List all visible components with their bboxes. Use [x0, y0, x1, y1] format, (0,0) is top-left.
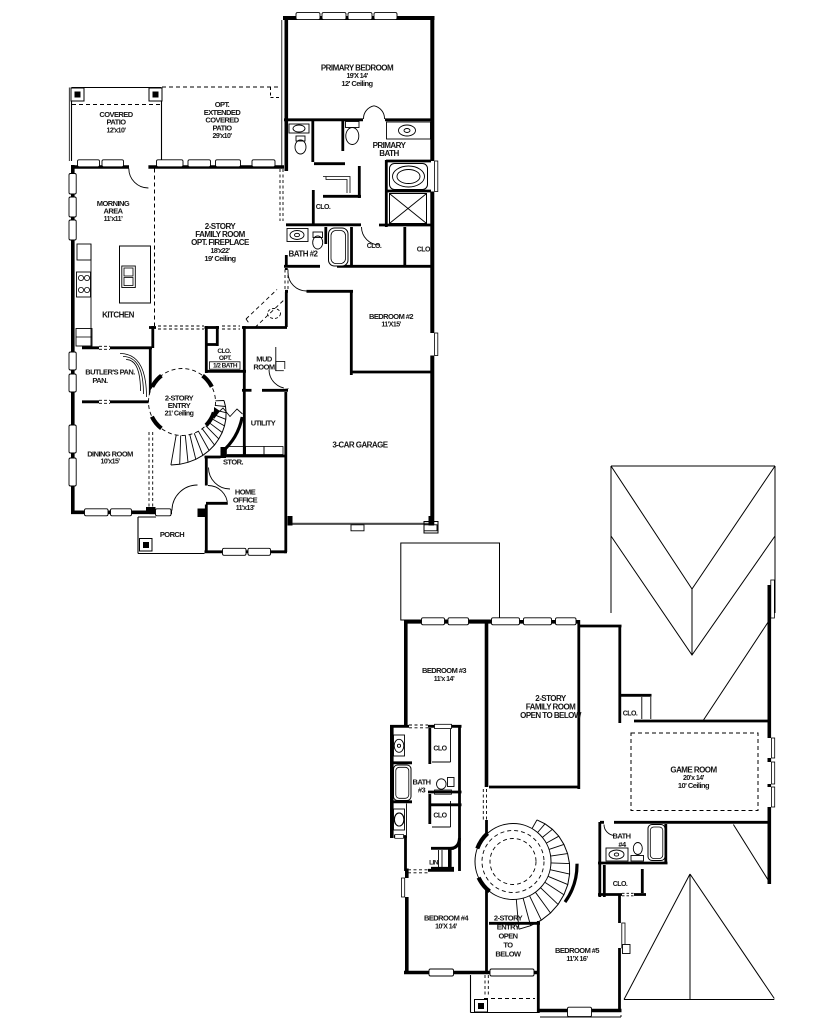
svg-text:ROOM: ROOM	[253, 363, 274, 372]
svg-text:LIN: LIN	[429, 860, 439, 867]
svg-text:DINING ROOM: DINING ROOM	[87, 450, 133, 459]
svg-text:BATH: BATH	[379, 149, 399, 158]
svg-text:29'x10': 29'x10'	[213, 133, 233, 140]
svg-text:TO: TO	[503, 941, 513, 950]
svg-text:PATIO: PATIO	[212, 123, 232, 132]
svg-text:BATH #2: BATH #2	[289, 250, 319, 259]
svg-text:GAME ROOM: GAME ROOM	[670, 766, 717, 775]
svg-text:OPEN TO BELOW: OPEN TO BELOW	[520, 711, 582, 720]
svg-text:19' Ceiling: 19' Ceiling	[204, 254, 236, 263]
svg-text:CLO.: CLO.	[613, 881, 628, 888]
svg-text:1/2 BATH: 1/2 BATH	[213, 362, 238, 369]
svg-text:PORCH: PORCH	[160, 530, 184, 539]
svg-text:CLO.: CLO.	[417, 247, 432, 254]
svg-text:CLO: CLO	[433, 813, 447, 820]
svg-text:BELOW: BELOW	[495, 950, 522, 959]
svg-text:#3: #3	[418, 786, 426, 795]
svg-text:11'x13': 11'x13'	[236, 505, 255, 512]
svg-text:BEDROOM #3: BEDROOM #3	[422, 666, 466, 675]
svg-text:BEDROOM #5: BEDROOM #5	[555, 946, 599, 955]
svg-text:11’X 16’: 11’X 16’	[566, 956, 588, 963]
svg-text:2-STORY: 2-STORY	[494, 914, 523, 923]
svg-text:12' Ceiling: 12' Ceiling	[341, 79, 373, 88]
svg-text:11’x 14’: 11’x 14’	[434, 676, 455, 683]
svg-text:11'X15': 11'X15'	[381, 322, 401, 329]
svg-text:STOR.: STOR.	[223, 458, 243, 467]
svg-text:PRIMARY BEDROOM: PRIMARY BEDROOM	[321, 64, 394, 73]
svg-text:OPEN: OPEN	[498, 932, 517, 941]
svg-text:3-CAR GARAGE: 3-CAR GARAGE	[332, 441, 388, 450]
svg-text:AREA: AREA	[103, 207, 123, 216]
svg-text:CLO.: CLO.	[623, 711, 638, 718]
svg-text:PATIO: PATIO	[106, 118, 126, 127]
svg-text:OFFICE: OFFICE	[233, 495, 258, 504]
svg-text:12'x10': 12'x10'	[107, 127, 127, 134]
svg-text:CLO: CLO	[433, 746, 447, 753]
svg-text:OPT.: OPT.	[219, 355, 232, 362]
svg-text:10' Ceiling: 10' Ceiling	[678, 781, 710, 790]
svg-text:ENTRY: ENTRY	[168, 401, 191, 410]
svg-text:21' Ceiling: 21' Ceiling	[165, 411, 194, 418]
svg-text:KITCHEN: KITCHEN	[102, 311, 134, 320]
svg-text:BEDROOM #4: BEDROOM #4	[424, 914, 469, 923]
svg-text:CLO.: CLO.	[316, 204, 331, 211]
svg-text:BEDROOM #2: BEDROOM #2	[369, 312, 413, 321]
svg-text:11’x11’: 11’x11’	[104, 216, 123, 223]
svg-text:CLO.: CLO.	[367, 243, 382, 250]
svg-text:10’X 14’: 10’X 14’	[435, 924, 457, 931]
svg-text:10'x15': 10'x15'	[101, 459, 121, 466]
svg-text:OPT. FIREPLACE: OPT. FIREPLACE	[191, 238, 250, 247]
svg-text:PAN.: PAN.	[92, 376, 108, 385]
svg-text:UTILITY: UTILITY	[251, 419, 276, 428]
svg-text:CLO.: CLO.	[217, 348, 231, 355]
svg-text:ENTRY: ENTRY	[497, 923, 520, 932]
